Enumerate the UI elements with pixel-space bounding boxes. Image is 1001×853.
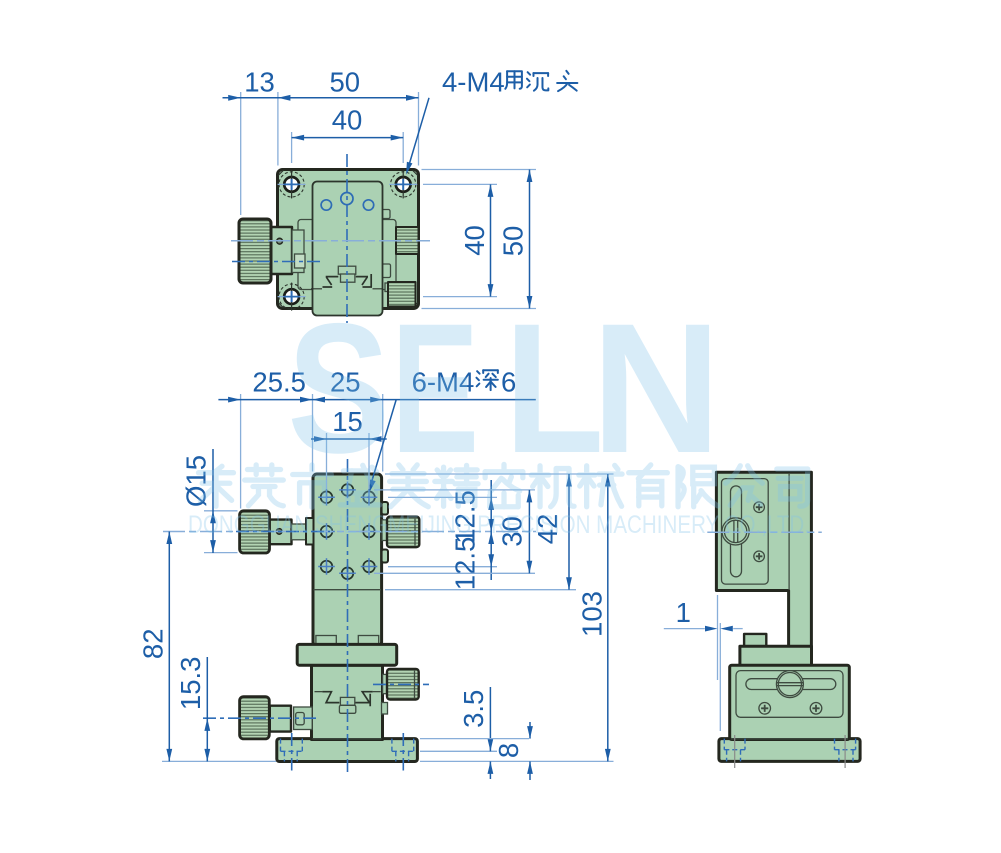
- svg-text:103: 103: [577, 591, 608, 637]
- svg-text:50: 50: [498, 226, 529, 257]
- svg-text:40: 40: [459, 225, 490, 256]
- svg-text:15.3: 15.3: [175, 657, 206, 711]
- svg-text:3.5: 3.5: [458, 690, 489, 728]
- svg-text:S: S: [287, 286, 390, 492]
- svg-text:40: 40: [332, 105, 363, 136]
- svg-text:13: 13: [244, 67, 275, 98]
- svg-text:8: 8: [493, 743, 524, 758]
- svg-text:N: N: [591, 286, 721, 492]
- svg-text:DONGGUAN SHENGMEIJING PRECISIO: DONGGUAN SHENGMEIJING PRECISION MACHINER…: [188, 511, 810, 539]
- svg-text:1: 1: [676, 597, 691, 628]
- svg-text:L: L: [504, 286, 604, 492]
- svg-text:50: 50: [330, 67, 361, 98]
- svg-text:E: E: [391, 286, 479, 492]
- svg-text:12.5: 12.5: [450, 537, 481, 591]
- svg-text:82: 82: [138, 629, 169, 660]
- svg-text:4-M4: 4-M4: [442, 67, 505, 98]
